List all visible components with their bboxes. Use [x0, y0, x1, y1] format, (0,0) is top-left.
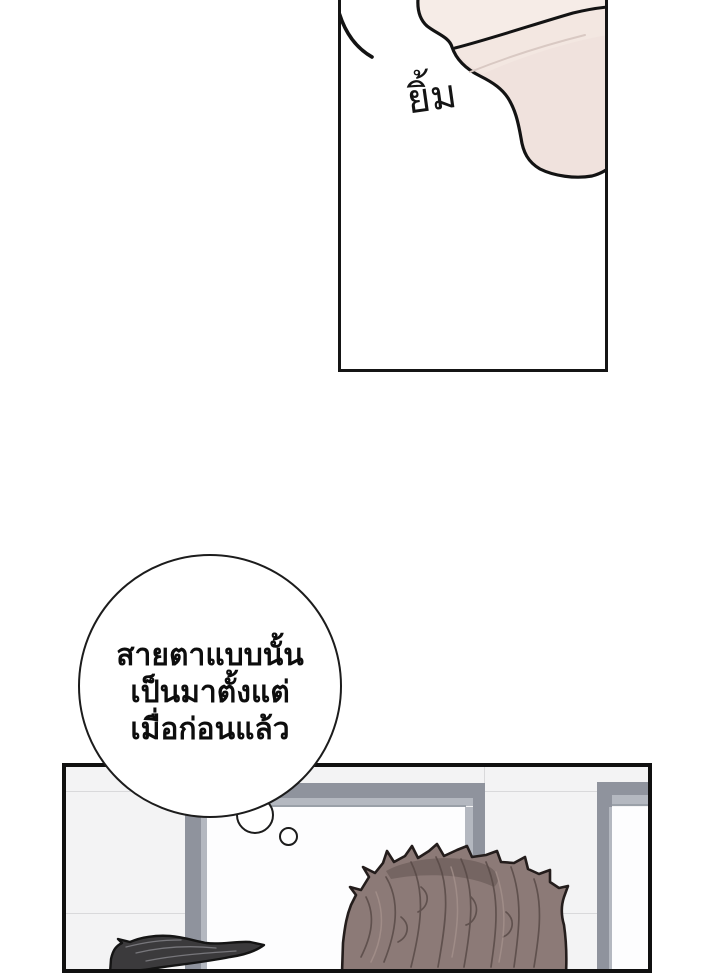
bubble-line-1: สายตาแบบนั้น	[116, 637, 304, 674]
bubble-line-3: เมื่อก่อนแล้ว	[130, 711, 289, 748]
thought-bubble: สายตาแบบนั้น เป็นมาตั้งแต่ เมื่อก่อนแล้ว	[78, 554, 342, 818]
comic-page: { "comic": { "panel_top": { "sfx_label":…	[0, 0, 720, 964]
black-hair	[110, 936, 264, 969]
cheek-arc	[341, 9, 372, 57]
sfx-text: ยิ้ม	[403, 64, 460, 123]
bubble-line-2: เป็นมาตั้งแต่	[130, 674, 289, 711]
top-panel: ยิ้ม	[338, 0, 608, 372]
thought-trail-dot	[279, 827, 298, 846]
face-closeup-artwork: ยิ้ม	[341, 0, 605, 364]
